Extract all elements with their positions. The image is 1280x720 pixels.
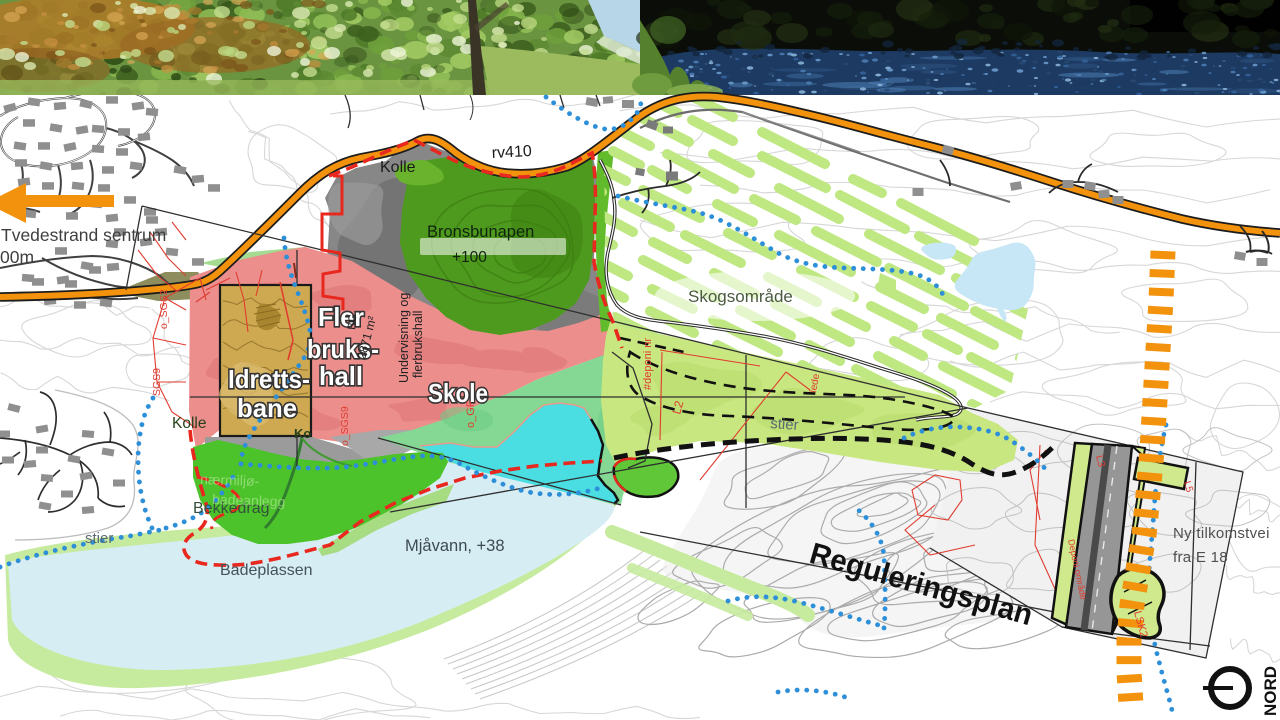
svg-text:fra E 18: fra E 18 — [1173, 549, 1228, 566]
svg-text:Bronsbunapen: Bronsbunapen — [427, 223, 534, 241]
svg-text:rv410: rv410 — [491, 143, 532, 162]
svg-text:o_GF: o_GF — [465, 400, 477, 428]
svg-text:nærmiljø-: nærmiljø- — [200, 471, 260, 489]
svg-text:Idretts-: Idretts- — [228, 364, 310, 394]
svg-text:badeanlegg: badeanlegg — [212, 491, 286, 510]
svg-text:flerbrukshall: flerbrukshall — [411, 311, 425, 378]
svg-text:Kolle: Kolle — [172, 415, 206, 432]
svg-text:Tvedestrand sentrum: Tvedestrand sentrum — [1, 225, 166, 245]
svg-text:hall: hall — [319, 361, 363, 391]
svg-text:o_SGS9: o_SGS9 — [339, 406, 351, 446]
svg-text:BG: BG — [346, 313, 359, 330]
svg-text:Skogsområde: Skogsområde — [688, 287, 793, 306]
svg-text:stier: stier — [85, 530, 113, 547]
svg-text:+100: +100 — [452, 249, 487, 266]
svg-text:SGS9: SGS9 — [151, 368, 163, 396]
svg-text:NORD: NORD — [1261, 666, 1280, 716]
svg-text:Ko: Ko — [294, 426, 311, 441]
svg-text:Badeplassen: Badeplassen — [220, 562, 313, 579]
svg-text:#deponi nr: #deponi nr — [642, 338, 654, 390]
svg-text:Kolle: Kolle — [380, 159, 416, 176]
svg-text:Undervisning og: Undervisning og — [397, 293, 411, 383]
svg-text:Skole: Skole — [428, 378, 488, 408]
svg-text:o_SGS2: o_SGS2 — [158, 289, 170, 329]
svg-text:Ny tilkomstvei: Ny tilkomstvei — [1173, 525, 1270, 542]
svg-text:Mjåvann, +38: Mjåvann, +38 — [405, 537, 505, 555]
svg-text:stier: stier — [770, 415, 799, 434]
svg-text:bane: bane — [237, 393, 297, 423]
svg-text:00m: 00m — [0, 247, 34, 267]
